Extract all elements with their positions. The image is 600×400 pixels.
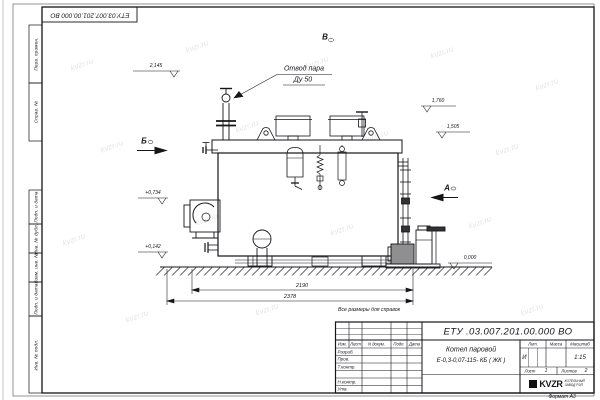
callout-steam-outlet: Отвод пара (284, 66, 324, 73)
view-label-a: А (444, 184, 450, 193)
feed-pump-unit (386, 226, 445, 268)
ground-line (160, 267, 493, 272)
titleblock-name-2: Е-0,3-0,07-115- КБ ( ЖК ) (437, 358, 506, 364)
margin-label-inv-dubl: Инв. № дубл. (33, 223, 38, 254)
lit-label: Лит. (528, 342, 538, 347)
row-razrab: Разраб. (338, 349, 354, 354)
col-data: Дата (409, 342, 420, 347)
corner-designation: ЕТУ.03.007.201.00.000 ВО (50, 11, 129, 18)
list-label: Лист (525, 368, 536, 373)
boiler-body (212, 140, 402, 256)
elevation-0142: +0,142 (145, 244, 160, 250)
view-label-b: Б (141, 137, 147, 146)
row-utv: Утв. (338, 387, 348, 392)
col-list: Лист (350, 342, 361, 347)
row-nkontr: Н.контр. (338, 379, 357, 384)
lit-value: И (522, 355, 526, 361)
lower-nozzle (205, 242, 218, 253)
front-pump (253, 230, 271, 266)
safety-valve (287, 148, 303, 190)
row-prov: Пров. (338, 357, 350, 362)
col-podp: Подп. (393, 342, 404, 347)
elevation-2145: 2,145 (150, 63, 163, 69)
callout-dn50: Ду 50 (294, 77, 312, 84)
listov-value: 2 (585, 368, 588, 374)
masshtab-label: Масштаб (570, 342, 590, 347)
view-label-v: В (322, 33, 328, 42)
scale-value: 1:15 (574, 355, 586, 361)
margin-label-podp-data-2: Подп. и дата (33, 283, 38, 314)
supports (235, 256, 400, 266)
logo-caption-line2: ЗАВОД РЭП (565, 384, 585, 388)
burner (184, 200, 220, 238)
format-note: Формат А3 (548, 394, 575, 400)
callout-leader (234, 75, 332, 99)
elevation-1760: 1,760 (432, 98, 445, 104)
margin-label-sprav-no: Справ. № (33, 101, 38, 123)
margin-label-inv-podl: Инв. № подл. (33, 339, 38, 370)
titleblock-designation: ЕТУ .03.007.201.00.000 ВО (444, 326, 573, 337)
left-top-valve (203, 143, 219, 155)
listov-label: Листов (561, 368, 576, 373)
margin-label-vzam-inv: Взам. инв. № (33, 252, 38, 283)
drawing-linework (0, 0, 600, 400)
col-izm: Изм. (338, 342, 347, 347)
lifting-lugs (257, 128, 380, 141)
margin-label-podp-data: Подп. и дата (33, 191, 38, 222)
spring-column (317, 145, 323, 190)
massa-label: Масса (550, 342, 562, 347)
logo-square-icon (529, 380, 537, 388)
row-tkontr: Т.контр. (338, 364, 356, 369)
col-ndokum: N докум. (368, 342, 385, 347)
reference-note: Все размеры для справок (338, 307, 400, 313)
dimension-2378: 2378 (284, 294, 296, 300)
elevation-0734: +0,734 (145, 190, 160, 196)
elevation-1505: 1,505 (447, 124, 460, 130)
elevation-0000: 0,000 (464, 255, 477, 261)
level-piping (398, 158, 411, 256)
logo-word: KVZR (539, 379, 562, 389)
dimension-2190: 2190 (296, 283, 308, 289)
titleblock-name-1: Котел паровой (446, 347, 496, 354)
gauge-column (338, 145, 346, 186)
drawing-sheet: kvzr.ru kvzr.ru kvzr.ru kvzr.ru kvzr.ru … (0, 0, 600, 400)
top-hatches (274, 116, 366, 140)
logo-caption: КОТЕЛЬНЫЙ ЗАВОД РЭП (565, 380, 585, 388)
margin-label-perv-primen: Перв. примен. (33, 37, 38, 70)
list-value: 1 (545, 368, 548, 374)
steam-outlet-pipe (216, 89, 236, 141)
manufacturer-logo: KVZR КОТЕЛЬНЫЙ ЗАВОД РЭП (521, 375, 593, 392)
